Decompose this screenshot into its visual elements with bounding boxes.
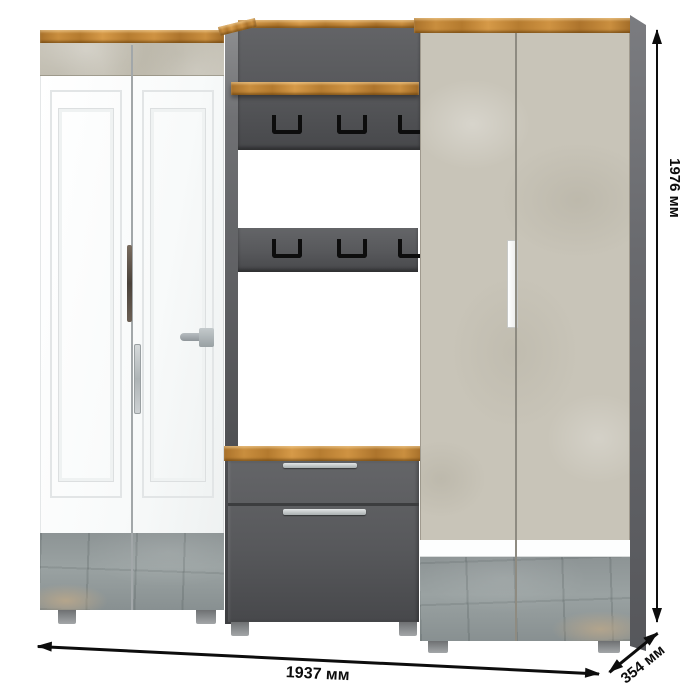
right-wardrobe-mirror	[420, 557, 630, 641]
width-dimension-arrow: 1937 мм	[36, 641, 599, 700]
left-door-molding-inner	[59, 109, 113, 481]
arrow-right-icon	[585, 668, 600, 679]
right-wardrobe-doors	[420, 33, 630, 540]
coat-hook	[337, 239, 367, 258]
left-wardrobe-top-panel	[40, 30, 224, 43]
right-wardrobe-foot	[428, 641, 448, 653]
coat-shelf	[231, 82, 419, 95]
shoe-cabinet-foot	[399, 622, 417, 636]
right-door-bar-handle	[134, 344, 141, 414]
left-wardrobe-foot	[196, 610, 216, 624]
left-wardrobe-foot	[58, 610, 76, 624]
coat-hook	[272, 115, 302, 134]
hook-rail-panel	[238, 228, 418, 272]
coat-hook	[272, 239, 302, 258]
lever-handle-rosette	[199, 328, 214, 347]
product-render: 1976 мм 1937 мм 354 мм	[0, 0, 700, 700]
right-wardrobe-door-gap	[515, 33, 517, 641]
drawer-handle-top	[283, 463, 357, 468]
drawer-divider	[228, 503, 419, 506]
arrow-left-icon	[37, 641, 52, 652]
shoe-cabinet-counter	[224, 446, 424, 461]
left-wardrobe-door-gap	[131, 45, 133, 610]
left-door-bar-handle	[127, 245, 132, 322]
right-wardrobe-top-panel	[414, 18, 632, 33]
drawer-handle-bottom	[283, 509, 366, 515]
arrow-up-icon	[652, 29, 662, 44]
coat-hook	[337, 115, 367, 134]
arrow-down-icon	[652, 608, 662, 623]
right-wardrobe-foot	[598, 641, 620, 653]
right-door-molding-inner	[151, 109, 205, 481]
height-dimension-label: 1976 мм	[664, 128, 684, 248]
right-wardrobe-side-panel	[630, 15, 646, 651]
height-dimension-line	[656, 30, 658, 622]
shoe-cabinet-foot	[231, 622, 249, 636]
shoe-cabinet-body	[228, 461, 419, 622]
open-section-top-edge	[238, 20, 420, 28]
height-dimension-arrow	[656, 30, 658, 622]
right-wardrobe-base-strip	[420, 540, 630, 557]
